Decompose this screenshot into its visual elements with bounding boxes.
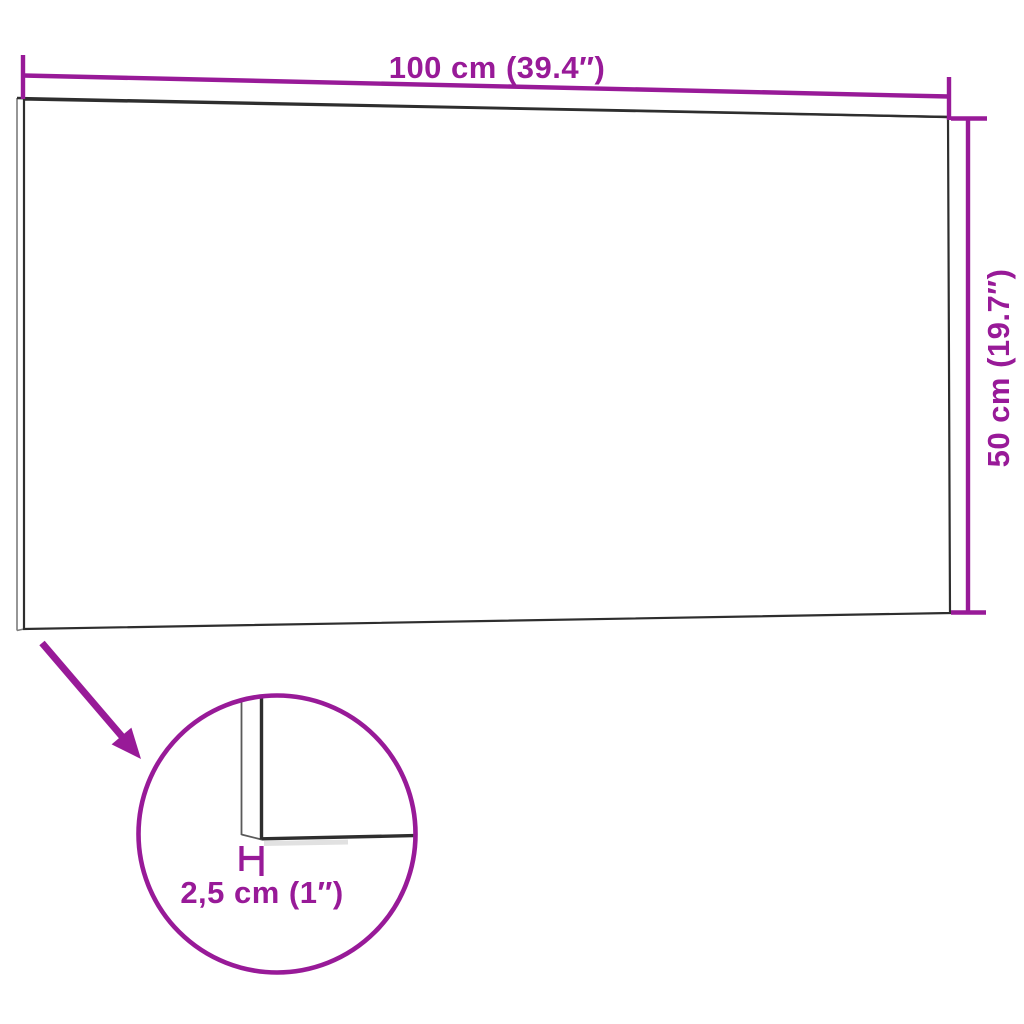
- width-dimension-label: 100 cm (39.4″): [389, 50, 606, 85]
- zoom-callout: [42, 643, 141, 759]
- detail-circle: [139, 696, 416, 973]
- panel-corner-detail: [242, 690, 419, 844]
- detail-bottom-shadow: [264, 842, 348, 844]
- dimension-diagram-canvas: 100 cm (39.4″) 50 cm (19.7″): [0, 0, 1024, 1024]
- thickness-dimension-text: 2,5 cm (1″): [180, 875, 343, 910]
- width-dimension-text: 100 cm (39.4″): [389, 50, 606, 85]
- detail-view: 2,5 cm (1″): [139, 690, 419, 973]
- dimension-diagram: 100 cm (39.4″) 50 cm (19.7″): [0, 0, 1024, 1024]
- detail-bottom-edge: [262, 836, 419, 839]
- callout-arrow-shaft-group: [42, 643, 122, 737]
- callout-arrow-shaft: [42, 643, 122, 737]
- detail-shadow: [264, 842, 348, 844]
- height-dimension-text: 50 cm (19.7″): [981, 269, 1016, 468]
- detail-corner-bevel: [242, 835, 262, 840]
- height-dimension-label: 50 cm (19.7″): [981, 269, 1016, 468]
- thickness-dimension-label: 2,5 cm (1″): [180, 875, 343, 910]
- thickness-dimension: [240, 846, 264, 876]
- panel-front: [17, 98, 950, 629]
- panel: [17, 98, 950, 631]
- panel-front-face: [24, 100, 950, 630]
